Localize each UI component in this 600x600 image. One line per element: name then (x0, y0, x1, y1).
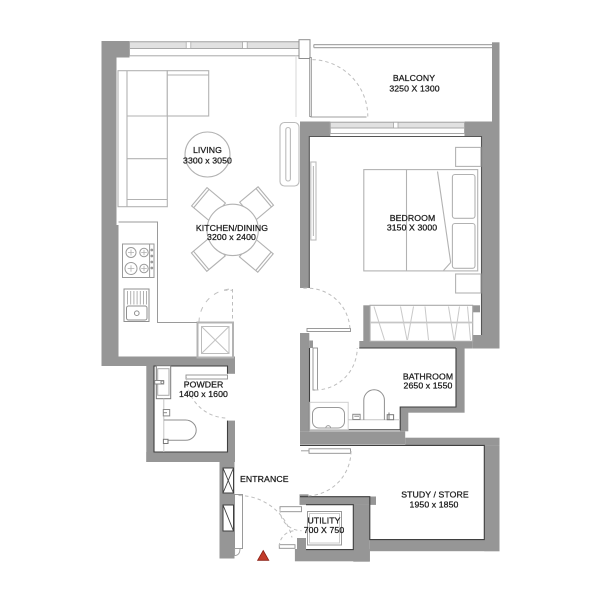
svg-text:STUDY / STORE: STUDY / STORE (401, 490, 469, 500)
svg-text:3150 X 3000: 3150 X 3000 (387, 222, 437, 232)
svg-text:3200 x 2400: 3200 x 2400 (207, 232, 256, 242)
svg-text:ENTRANCE: ENTRANCE (240, 474, 289, 484)
svg-text:3250 X 1300: 3250 X 1300 (389, 83, 439, 93)
svg-text:3300 x 3050: 3300 x 3050 (183, 156, 232, 166)
svg-text:700 X 750: 700 X 750 (304, 525, 345, 535)
svg-text:UTILITY: UTILITY (307, 516, 340, 526)
svg-text:1400 x 1600: 1400 x 1600 (179, 389, 228, 399)
svg-text:1950 x 1850: 1950 x 1850 (410, 499, 459, 509)
svg-text:BALCONY: BALCONY (393, 73, 435, 83)
svg-text:2650 x 1550: 2650 x 1550 (404, 380, 453, 390)
svg-text:LIVING: LIVING (193, 145, 222, 155)
